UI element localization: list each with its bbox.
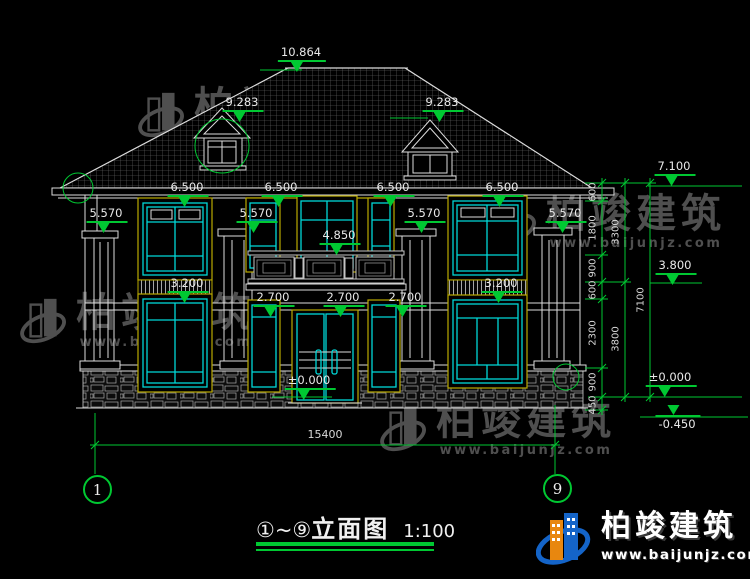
elevation-mark-eave-right: 7.100 (655, 160, 696, 186)
elevation-mark-eave-3: 6.500 (374, 181, 415, 207)
elevation-triangle-icon (178, 197, 190, 207)
elevation-triangle-icon (264, 307, 276, 317)
dim-chain-label: 450 (588, 395, 599, 414)
axis-range: ①~⑨ (256, 518, 311, 542)
axis-bubble-9: 9 (543, 474, 572, 503)
pilaster-far-left (80, 231, 120, 369)
elevation-mark-level-right: 3.800 (656, 259, 697, 285)
elevation-mark-sill-right: 3.200 (482, 277, 523, 303)
drawing-title: ①~⑨ 立面图 1:100 (256, 509, 455, 544)
elevation-triangle-icon (433, 112, 445, 122)
dim-chain-label: 2300 (588, 320, 599, 345)
elevation-mark-dormer-left: 9.283 (223, 96, 264, 122)
dim-chain-label: 7100 (636, 287, 647, 312)
dim-chain-label: 900 (588, 372, 599, 391)
elevation-triangle-icon (492, 293, 504, 303)
elevation-triangle-icon (666, 275, 678, 285)
elevation-triangle-icon (233, 112, 245, 122)
elevation-mark-sill-left: 3.200 (168, 277, 209, 303)
elevation-triangle-icon (384, 197, 396, 207)
elevation-mark-eave-4: 6.500 (483, 181, 524, 207)
dim-chain-label: 600 (588, 182, 599, 201)
elevation-triangle-icon (665, 176, 677, 186)
elevation-triangle-icon (290, 62, 302, 72)
elevation-triangle-icon (659, 387, 671, 397)
elevation-triangle-icon (247, 223, 259, 233)
elevation-mark-ridge: 10.864 (278, 46, 326, 72)
elevation-mark-capital-4: 5.570 (546, 207, 587, 233)
elevation-mark-floor2-3: 2.700 (386, 291, 427, 317)
title-underline-thick (256, 542, 434, 546)
elevation-triangle-icon (97, 223, 109, 233)
title-underline-thin (256, 549, 434, 551)
elevation-mark-capital-3: 5.570 (405, 207, 446, 233)
elevation-mark-ground-center: ±0.000 (285, 374, 336, 400)
elevation-triangle-icon (334, 307, 346, 317)
dim-chain-label: 3300 (611, 219, 622, 244)
hip-roof (52, 68, 614, 198)
dim-total-width: 15400 (308, 428, 343, 441)
drawing-scale: 1:100 (403, 521, 455, 542)
elevation-triangle-icon (178, 293, 190, 303)
title-text: 立面图 (311, 509, 389, 544)
elevation-mark-eave-2: 6.500 (262, 181, 303, 207)
brand-logo-icon (536, 506, 594, 568)
elevation-triangle-icon (493, 197, 505, 207)
elevation-triangle-icon (556, 223, 568, 233)
dim-chain-label: 900 (588, 258, 599, 277)
dim-chain-label: 3800 (611, 326, 622, 351)
balcony-railing (246, 251, 406, 290)
brand-logo: 柏竣建筑 www.baijunjz.com (536, 506, 750, 568)
dim-chain-label: 600 (588, 280, 599, 299)
pilaster-far-right (534, 228, 572, 369)
elevation-triangle-icon (330, 245, 342, 255)
elevation-mark-balcony: 4.850 (320, 229, 361, 255)
elevation-triangle-icon (396, 307, 408, 317)
window-1f-left (138, 294, 212, 392)
cad-elevation-drawing: 柏竣建筑 www.baijunjz.com 柏竣建筑 www.baijunjz.… (0, 0, 750, 579)
elevation-mark-basement: -0.450 (655, 405, 700, 432)
elevation-mark-ground-right: ±0.000 (646, 371, 697, 397)
dim-chain-label: 1800 (588, 215, 599, 240)
window-1f-right (448, 295, 527, 388)
elevation-mark-eave-1: 6.500 (168, 181, 209, 207)
elevation-mark-floor2-2: 2.700 (324, 291, 365, 317)
elevation-mark-capital-1: 5.570 (87, 207, 128, 233)
elevation-triangle-icon (298, 390, 310, 400)
elevation-triangle-icon (272, 197, 284, 207)
elevation-triangle-icon (667, 405, 679, 415)
elevation-mark-floor2-1: 2.700 (254, 291, 295, 317)
elevation-mark-capital-2: 5.570 (237, 207, 278, 233)
axis-bubble-1: 1 (83, 475, 112, 504)
brand-url: www.baijunjz.com (601, 547, 750, 563)
brand-name: 柏竣建筑 (601, 511, 750, 543)
elevation-triangle-icon (415, 223, 427, 233)
elevation-mark-dormer-right: 9.283 (423, 96, 464, 122)
